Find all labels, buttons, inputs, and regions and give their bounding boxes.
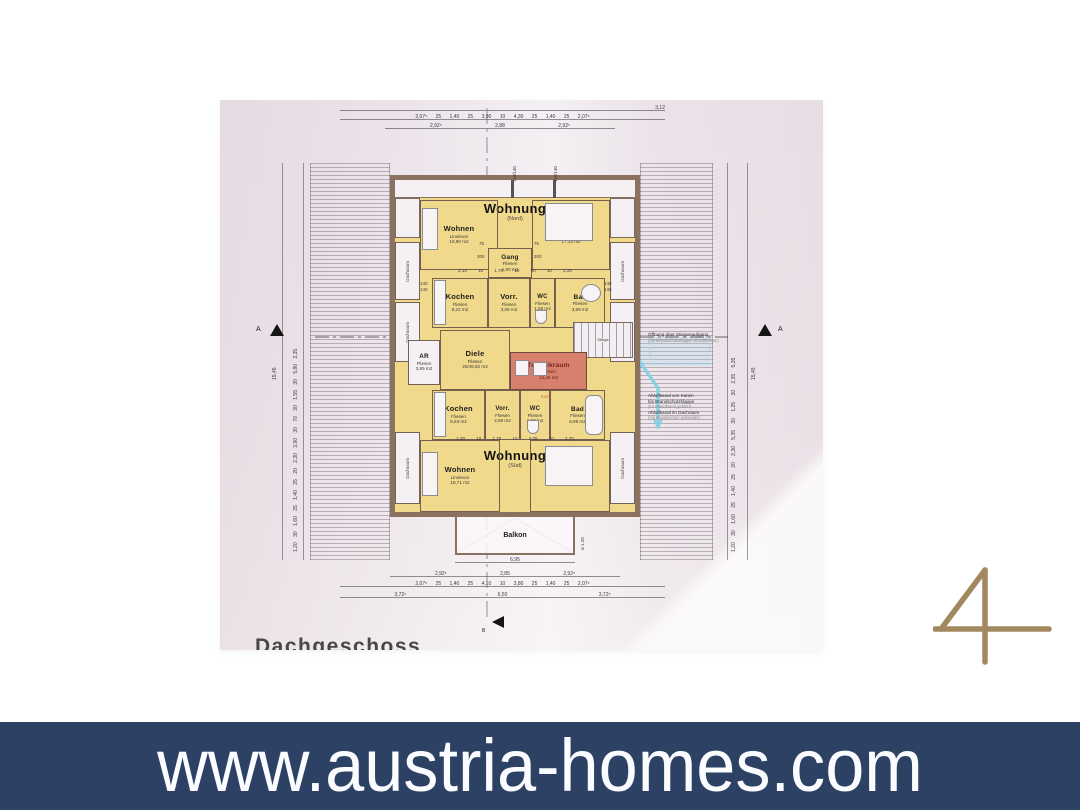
dachraum-label: Dachraum [405,261,410,282]
floorplan-scan: 3,12 2,07⁵ 25 1,40 25 3,90 10 4,30 25 1,… [220,100,823,650]
door-dim: 76 [534,241,539,246]
room-area: 18,71 m2 [450,480,469,485]
website-banner: www.austria-homes.com [0,722,1080,810]
dachraum-label: Dachraum [405,458,410,479]
window-dim: 110/140 [512,166,517,182]
room-area: 16,90 m2 [449,239,468,244]
closet-ne [610,198,635,238]
dim-balkon: 6,95 [455,562,575,563]
window-dim: 115/140 [553,166,558,182]
room-name: Wohnen [444,225,475,234]
stairs-label: Stiege [597,338,608,343]
niche-dachraum: Dachraum [610,242,635,300]
dachraum-label: Dachraum [620,458,625,479]
appliance [515,360,529,376]
room-name: Diele [466,350,485,359]
door-dim: 75 [479,241,484,246]
room-name: AR [419,353,429,360]
dachraum-label: Dachraum [620,261,625,282]
section-letter-b: B [482,628,485,634]
room-area: 3,85 m2 [416,366,433,371]
dim-balkon-radius: ø 1,20 [580,537,585,550]
room-name: Vorr. [500,293,518,302]
bed [545,203,593,241]
room-ar: AR Fliesen 3,85 m2 [408,340,440,385]
toilet [527,420,539,434]
section-letter-a-right: A [778,326,783,333]
closet-nw [395,198,420,238]
dim-inner-north: 2,10 10 1,70 10 90 10 2,20 [420,268,610,273]
section-marker-b-icon [492,616,504,628]
window-mark [511,180,514,198]
section-letter-a-left: A [256,326,261,333]
floor-title: Dachgeschoss [255,635,421,650]
door-dim: 200 [477,254,485,259]
room-area: 3,06 m2 [501,307,518,312]
section-marker-a-left-icon [270,324,284,336]
room-name: Vorr. [495,406,509,413]
room-area: 8,22 m2 [452,307,469,312]
room-area: 8,63 m2 [450,419,467,424]
room-area: 2,99 m2 [494,418,511,423]
building-outline: Dachraum Dachraum Dachraum Dachraum Dach… [390,175,640,517]
room-diele: Diele Fliesen 20/49,82 m2 [440,330,510,390]
note-abluft: Abluftkanal von Kamin bis Brandschutzkla… [648,393,738,421]
balkon: Balkon [455,517,575,555]
eave-strip [395,180,635,198]
dim-text: 6,95 [455,557,575,563]
room-vorraum-nord: Vorr. Fliesen 3,06 m2 [488,278,530,328]
room-area: 20/49,82 m2 [462,364,488,369]
note-line: (mit Brandschutz verkleidet) [648,415,738,420]
room-name: Bad [571,406,584,413]
niche-dachraum: Dachraum [395,432,420,504]
watermark-4-icon [933,563,1055,671]
room-area: 6,99 m2 [569,419,586,424]
appliance [533,362,547,376]
room-area: 3,99 m2 [572,307,589,312]
kitchen-counter [434,280,446,325]
room-vorraum-sued: Vorr. Fliesen 2,99 m2 [485,390,520,440]
niche-dachraum: Dachraum [610,432,635,504]
toilet [535,310,547,324]
page: 3,12 2,07⁵ 25 1,40 25 3,90 10 4,30 25 1,… [0,0,1080,810]
website-url: www.austria-homes.com [157,729,923,803]
door-dim: 200 [534,254,542,259]
window-dim: 140 [604,281,612,286]
window-mark [553,180,556,198]
room-name: WC [537,294,547,301]
sink [581,284,601,302]
note-line: (mit Brandschutzklappe verschlossen) [648,338,766,343]
room-name: Kochen [446,293,475,302]
niche-dachraum: Dachraum [395,242,420,300]
room-name: WC [530,406,540,413]
sofa [422,208,438,250]
window-dim: 140 [420,287,428,292]
sofa [422,452,438,496]
note-oeffnung: Öffnung über Stiegenaufgang (mit Brandsc… [648,332,766,343]
window-dim: 140 [420,281,428,286]
window-dim: 140 [604,287,612,292]
room-name: Gang [501,254,518,261]
watermark-4 [933,563,1055,671]
balkon-label: Balkon [503,532,526,539]
room-name: Wohnen [445,466,476,475]
bed [545,446,593,486]
bathtub [585,395,603,435]
room-name: Kochen [444,405,473,414]
kitchen-counter [434,392,446,437]
room-gang: Gang Fliesen 1,90 m2 [488,248,532,278]
